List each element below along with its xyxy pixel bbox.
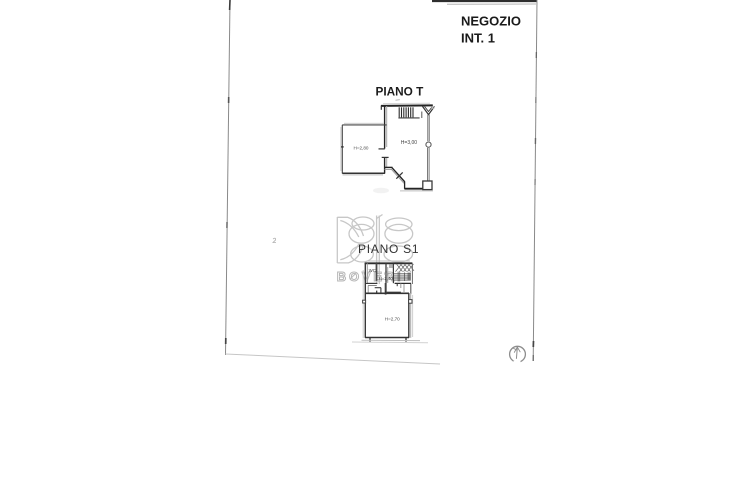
svg-text:H=2,80: H=2,80 — [354, 145, 369, 150]
svg-text:H=2,70: H=2,70 — [385, 316, 400, 321]
svg-text:H=2,40: H=2,40 — [379, 276, 394, 281]
svg-text:PIANO S1: PIANO S1 — [358, 242, 419, 256]
svg-text:NEGOZIO: NEGOZIO — [461, 13, 521, 28]
svg-text:INT. 1: INT. 1 — [461, 30, 495, 45]
svg-text:H=3,00: H=3,00 — [401, 140, 417, 146]
svg-text:PIANO T: PIANO T — [376, 84, 425, 98]
svg-text:WC: WC — [369, 268, 376, 273]
